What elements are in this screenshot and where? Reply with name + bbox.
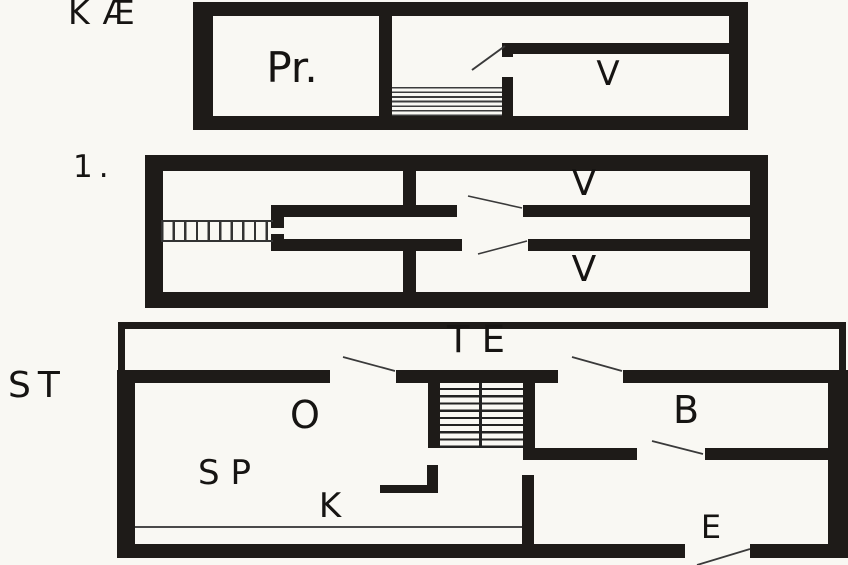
door-swing-line [572, 357, 622, 371]
door-swing-line [652, 441, 703, 454]
door-swings-overlay [0, 0, 848, 565]
door-swing-line [478, 241, 527, 254]
door-swing-line [697, 549, 750, 565]
floor-plan-canvas: KÆ Pr. V 1. [0, 0, 848, 565]
door-swing-line [468, 196, 522, 208]
door-swing-line [343, 357, 395, 371]
door-swing-line [472, 46, 505, 70]
